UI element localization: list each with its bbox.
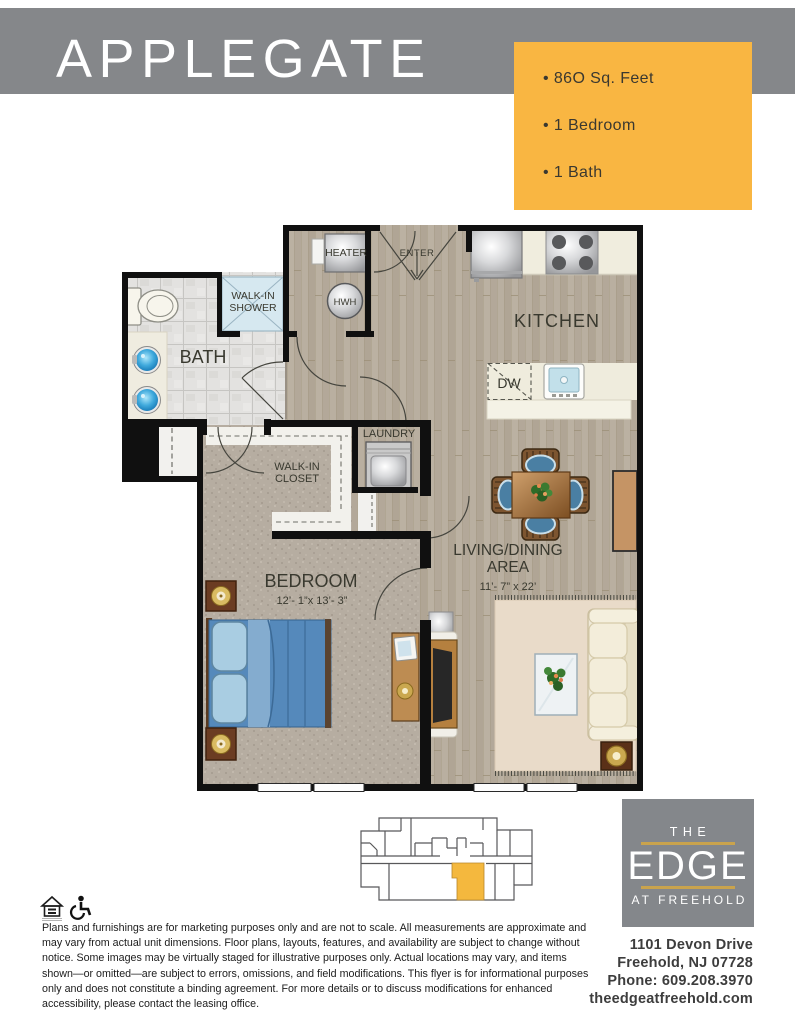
svg-text:ENTER: ENTER	[400, 248, 435, 259]
svg-text:11’- 7” x 22’: 11’- 7” x 22’	[480, 581, 537, 593]
svg-text:HEATER: HEATER	[325, 247, 367, 259]
svg-text:12’- 1”x 13’- 3”: 12’- 1”x 13’- 3”	[277, 595, 348, 607]
svg-text:BEDROOM: BEDROOM	[264, 571, 357, 591]
svg-text:CLOSET: CLOSET	[275, 473, 319, 485]
svg-text:DW: DW	[497, 375, 521, 391]
svg-text:WALK-IN: WALK-IN	[274, 461, 319, 473]
svg-text:BATH: BATH	[180, 347, 227, 367]
svg-text:LIVING/DINING: LIVING/DINING	[453, 542, 562, 559]
svg-text:AREA: AREA	[487, 559, 530, 576]
svg-text:EDGE: EDGE	[627, 844, 748, 887]
svg-text:HWH: HWH	[334, 297, 357, 308]
svg-text:LAUNDRY: LAUNDRY	[363, 428, 416, 440]
svg-text:SHOWER: SHOWER	[229, 302, 277, 314]
svg-text:WALK-IN: WALK-IN	[231, 290, 274, 302]
svg-text:KITCHEN: KITCHEN	[514, 311, 600, 331]
